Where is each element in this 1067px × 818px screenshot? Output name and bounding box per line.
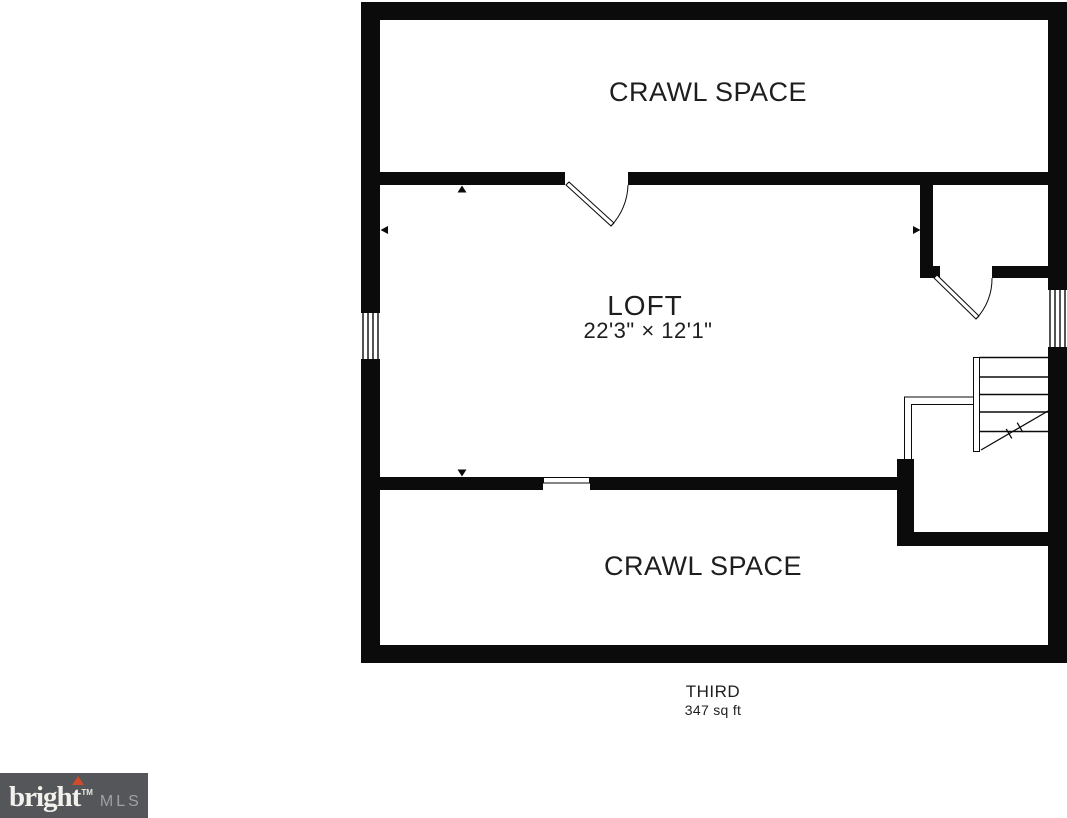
marker-left-icon <box>381 226 389 234</box>
marker-down-icon <box>458 470 467 477</box>
logo-suffix-text: MLS <box>100 794 142 810</box>
wall-left-upper <box>361 2 380 313</box>
door-top-icon <box>566 182 628 226</box>
stair-direction-line <box>981 411 1048 450</box>
crawl-space-bottom-label: CRAWL SPACE <box>604 551 802 582</box>
interior-walls <box>380 172 1048 546</box>
floor-name-label: THIRD <box>686 682 740 702</box>
door-closet-icon <box>934 275 992 319</box>
crawl-space-top-label: CRAWL SPACE <box>609 77 807 108</box>
logo-arrow-icon <box>72 776 84 785</box>
wall-stairwell-bottom <box>897 532 1048 546</box>
wall-loft-top-right <box>628 172 1048 185</box>
wall-right-upper <box>1048 2 1067 290</box>
logo-trademark: TM <box>81 788 93 797</box>
marker-up-icon <box>458 186 467 193</box>
logo-brand-text: brightTM <box>9 783 93 812</box>
wall-loft-top-left <box>380 172 565 185</box>
wall-right-lower <box>1048 347 1067 663</box>
wall-closet-left <box>920 185 933 278</box>
wall-bottom <box>361 645 1067 663</box>
loft-pass-through-icon <box>544 478 590 484</box>
floor-area-label: 347 sq ft <box>685 702 741 718</box>
logo-brand-word: bright <box>9 781 80 813</box>
wall-closet-bottom <box>992 266 1048 278</box>
wall-loft-bottom-right <box>590 477 897 490</box>
window-left-icon <box>363 313 378 359</box>
wall-loft-bottom-left <box>380 477 543 490</box>
stair-railing-icon <box>905 397 974 462</box>
marker-right-icon <box>913 226 921 234</box>
floor-plan-page: CRAWL SPACE LOFT 22'3" × 12'1" CRAWL SPA… <box>0 0 1067 818</box>
loft-dimensions-label: 22'3" × 12'1" <box>583 318 712 344</box>
wall-top <box>361 2 1067 20</box>
window-right-icon <box>1050 290 1065 347</box>
staircase-icon <box>974 358 1049 452</box>
brightmls-logo: brightTM MLS <box>0 773 148 818</box>
wall-left-lower <box>361 359 380 663</box>
floor-plan-drawing <box>0 0 1067 818</box>
